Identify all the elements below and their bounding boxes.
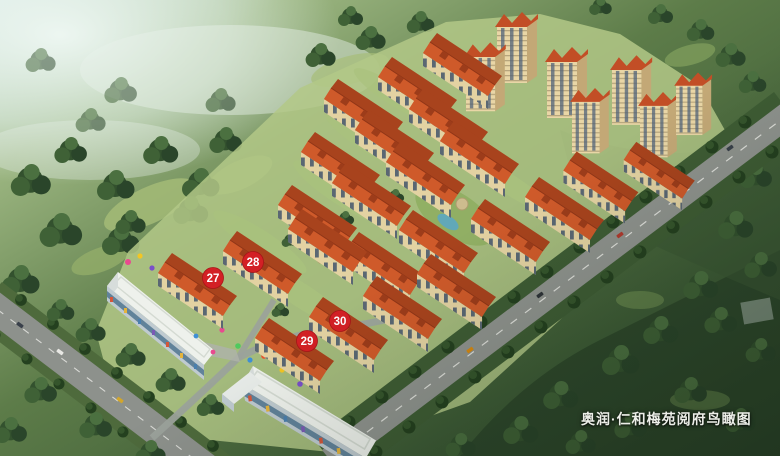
project-caption: 奥润·仁和梅苑阅府鸟瞰图 — [581, 409, 752, 429]
vignette-overlay — [0, 0, 780, 456]
aerial-scene: 27 28 29 30 — [0, 0, 780, 456]
birdseye-rendering: 27 28 29 30 奥润·仁和梅苑阅府鸟瞰图 — [0, 0, 780, 456]
